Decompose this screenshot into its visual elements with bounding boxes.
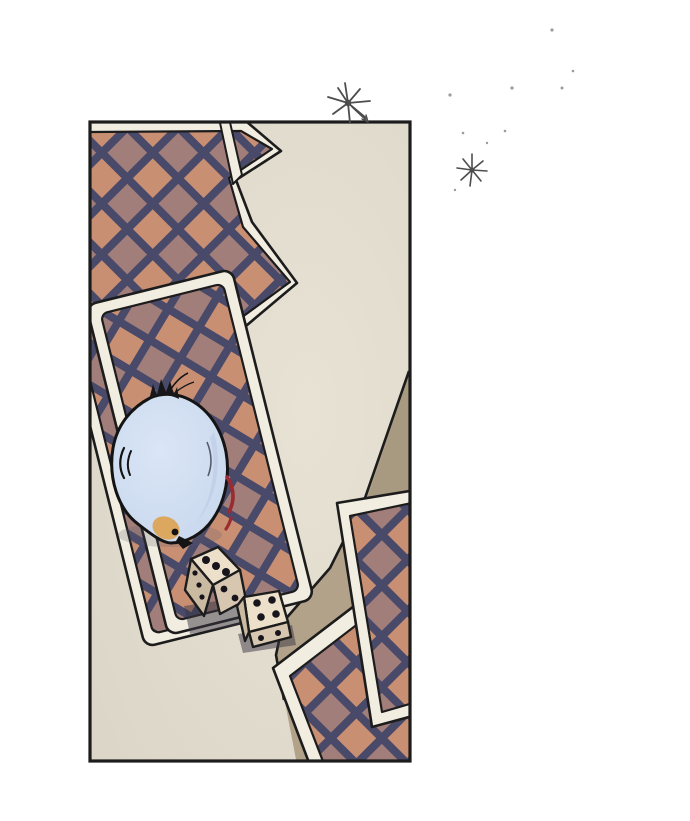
comic-panel-illustration xyxy=(0,0,690,821)
sparkle-2-core xyxy=(469,167,474,172)
ink-specks xyxy=(448,28,574,191)
bird-eye xyxy=(172,529,179,536)
sparkle-1-core xyxy=(345,100,351,106)
comic-page xyxy=(0,0,690,821)
